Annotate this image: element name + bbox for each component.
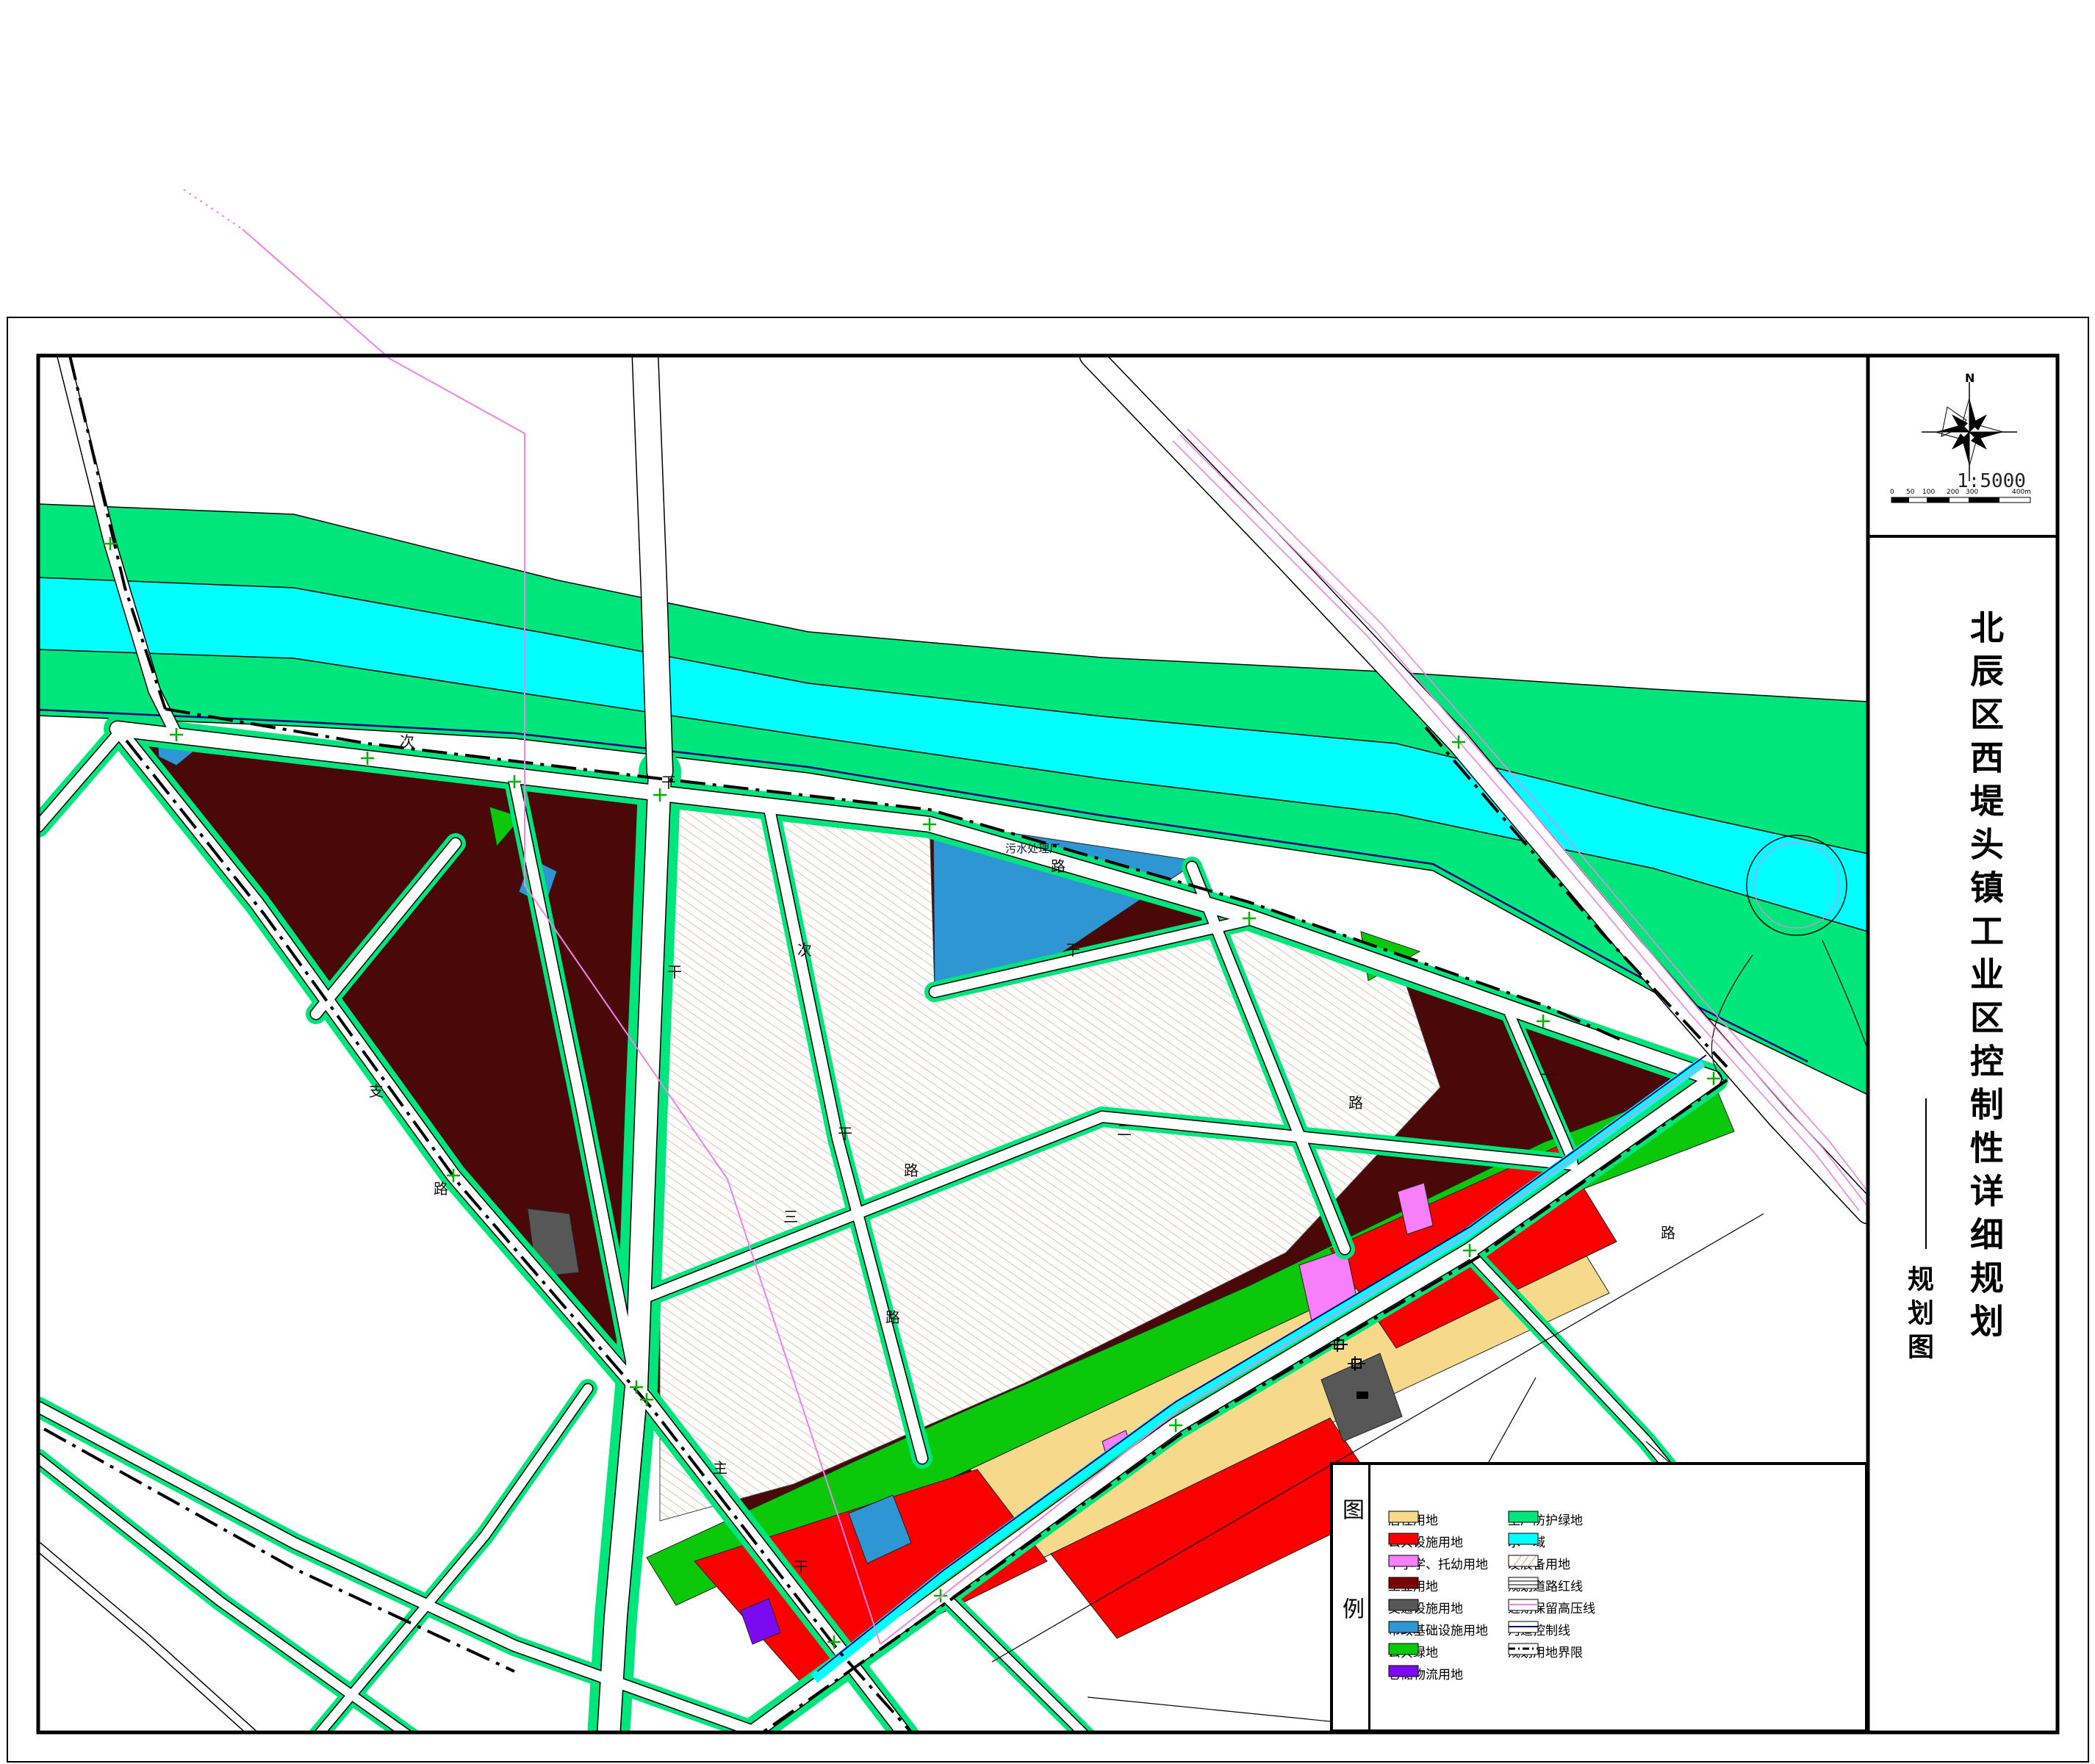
svg-text:路: 路 xyxy=(434,1180,448,1198)
svg-text:路: 路 xyxy=(904,1162,919,1179)
svg-text:干: 干 xyxy=(667,963,682,981)
svg-text:次: 次 xyxy=(797,941,812,959)
svg-text:次: 次 xyxy=(400,732,414,750)
svg-text:路: 路 xyxy=(1661,1224,1675,1242)
legend-item-protect-green: 生产防护绿地 xyxy=(1508,1511,1583,1527)
svg-text:50: 50 xyxy=(1906,489,1915,496)
north-label: N xyxy=(1965,371,1974,385)
warehouse-swatch xyxy=(1388,1665,1419,1677)
svg-text:路: 路 xyxy=(1051,857,1066,875)
legend-item-warehouse: 仓储物流用地 xyxy=(1388,1665,1463,1681)
legend-item-residential: 居住用地 xyxy=(1388,1511,1438,1527)
plan-sheet: 次 干 路 支 路 主 干 干 三 路 次 干 路 一 二 路 干 路 污水处理… xyxy=(0,0,2095,1764)
svg-text:二: 二 xyxy=(1117,1121,1132,1139)
public-fac-swatch xyxy=(1388,1533,1419,1545)
sewage-plant-label: 污水处理厂 xyxy=(1005,842,1060,855)
svg-text:干: 干 xyxy=(794,1558,808,1576)
school-swatch xyxy=(1388,1555,1419,1567)
legend-item-road-redline: 规划道路红线 xyxy=(1508,1577,1583,1593)
water-swatch xyxy=(1508,1533,1539,1545)
legend-item-school: 中小学、托幼用地 xyxy=(1388,1555,1488,1571)
svg-text:0: 0 xyxy=(1890,489,1894,496)
legend-item-transport: 交通设施用地 xyxy=(1388,1599,1463,1615)
scale-label: 1:5000 xyxy=(1933,470,2050,492)
legend-item-reserve: 发展备用地 xyxy=(1508,1555,1570,1571)
public-green-swatch xyxy=(1388,1643,1419,1655)
municipal-swatch xyxy=(1388,1621,1419,1633)
legend-header-label: 图例 xyxy=(1334,1498,1367,1696)
legend-item-municipal: 市政基础设施用地 xyxy=(1388,1621,1488,1637)
reserve-swatch xyxy=(1508,1555,1539,1567)
svg-text:主: 主 xyxy=(713,1459,727,1477)
river-ctrl-swatch xyxy=(1508,1621,1539,1633)
legend-item-public-fac: 公共设施用地 xyxy=(1388,1533,1463,1549)
svg-text:支: 支 xyxy=(369,1082,384,1100)
legend-item-public-green: 公共绿地 xyxy=(1388,1643,1438,1659)
hv-line-swatch xyxy=(1508,1599,1539,1611)
legend-item-hv-line: 近期保留高压线 xyxy=(1508,1599,1595,1615)
boundary-swatch xyxy=(1508,1643,1539,1655)
title-divider xyxy=(1925,1098,1927,1249)
svg-text:路: 路 xyxy=(1348,1094,1363,1112)
sheet-subtitle: 规划图 xyxy=(1900,1265,1938,1367)
north-arrow xyxy=(1922,382,2017,481)
residential-swatch xyxy=(1388,1511,1419,1523)
svg-text:一: 一 xyxy=(1539,1066,1554,1084)
sheet-title: 北辰区西堤头镇工业区控制性详细规划 xyxy=(1961,610,2009,1347)
legend-item-boundary: 规划用地界限 xyxy=(1508,1643,1583,1659)
legend-box: 图例 居住用地 公共设施用地 中小学、托幼用地 工业用地 交通设施用地 市政基础… xyxy=(1330,1462,1868,1732)
svg-text:干: 干 xyxy=(1066,941,1080,959)
protect-green-swatch xyxy=(1508,1511,1539,1523)
transport-swatch xyxy=(1388,1599,1419,1611)
legend-header: 图例 xyxy=(1333,1465,1370,1729)
road-redline-swatch xyxy=(1508,1577,1539,1589)
svg-text:路: 路 xyxy=(885,1308,900,1326)
svg-text:三: 三 xyxy=(783,1208,798,1225)
svg-text:干: 干 xyxy=(838,1125,852,1142)
svg-text:干: 干 xyxy=(661,774,676,791)
industrial-swatch xyxy=(1388,1577,1419,1589)
legend-item-industrial: 工业用地 xyxy=(1388,1577,1438,1593)
legend-item-river-ctrl: 河道控制线 xyxy=(1508,1621,1570,1637)
legend-item-water: 水 域 xyxy=(1508,1533,1545,1549)
